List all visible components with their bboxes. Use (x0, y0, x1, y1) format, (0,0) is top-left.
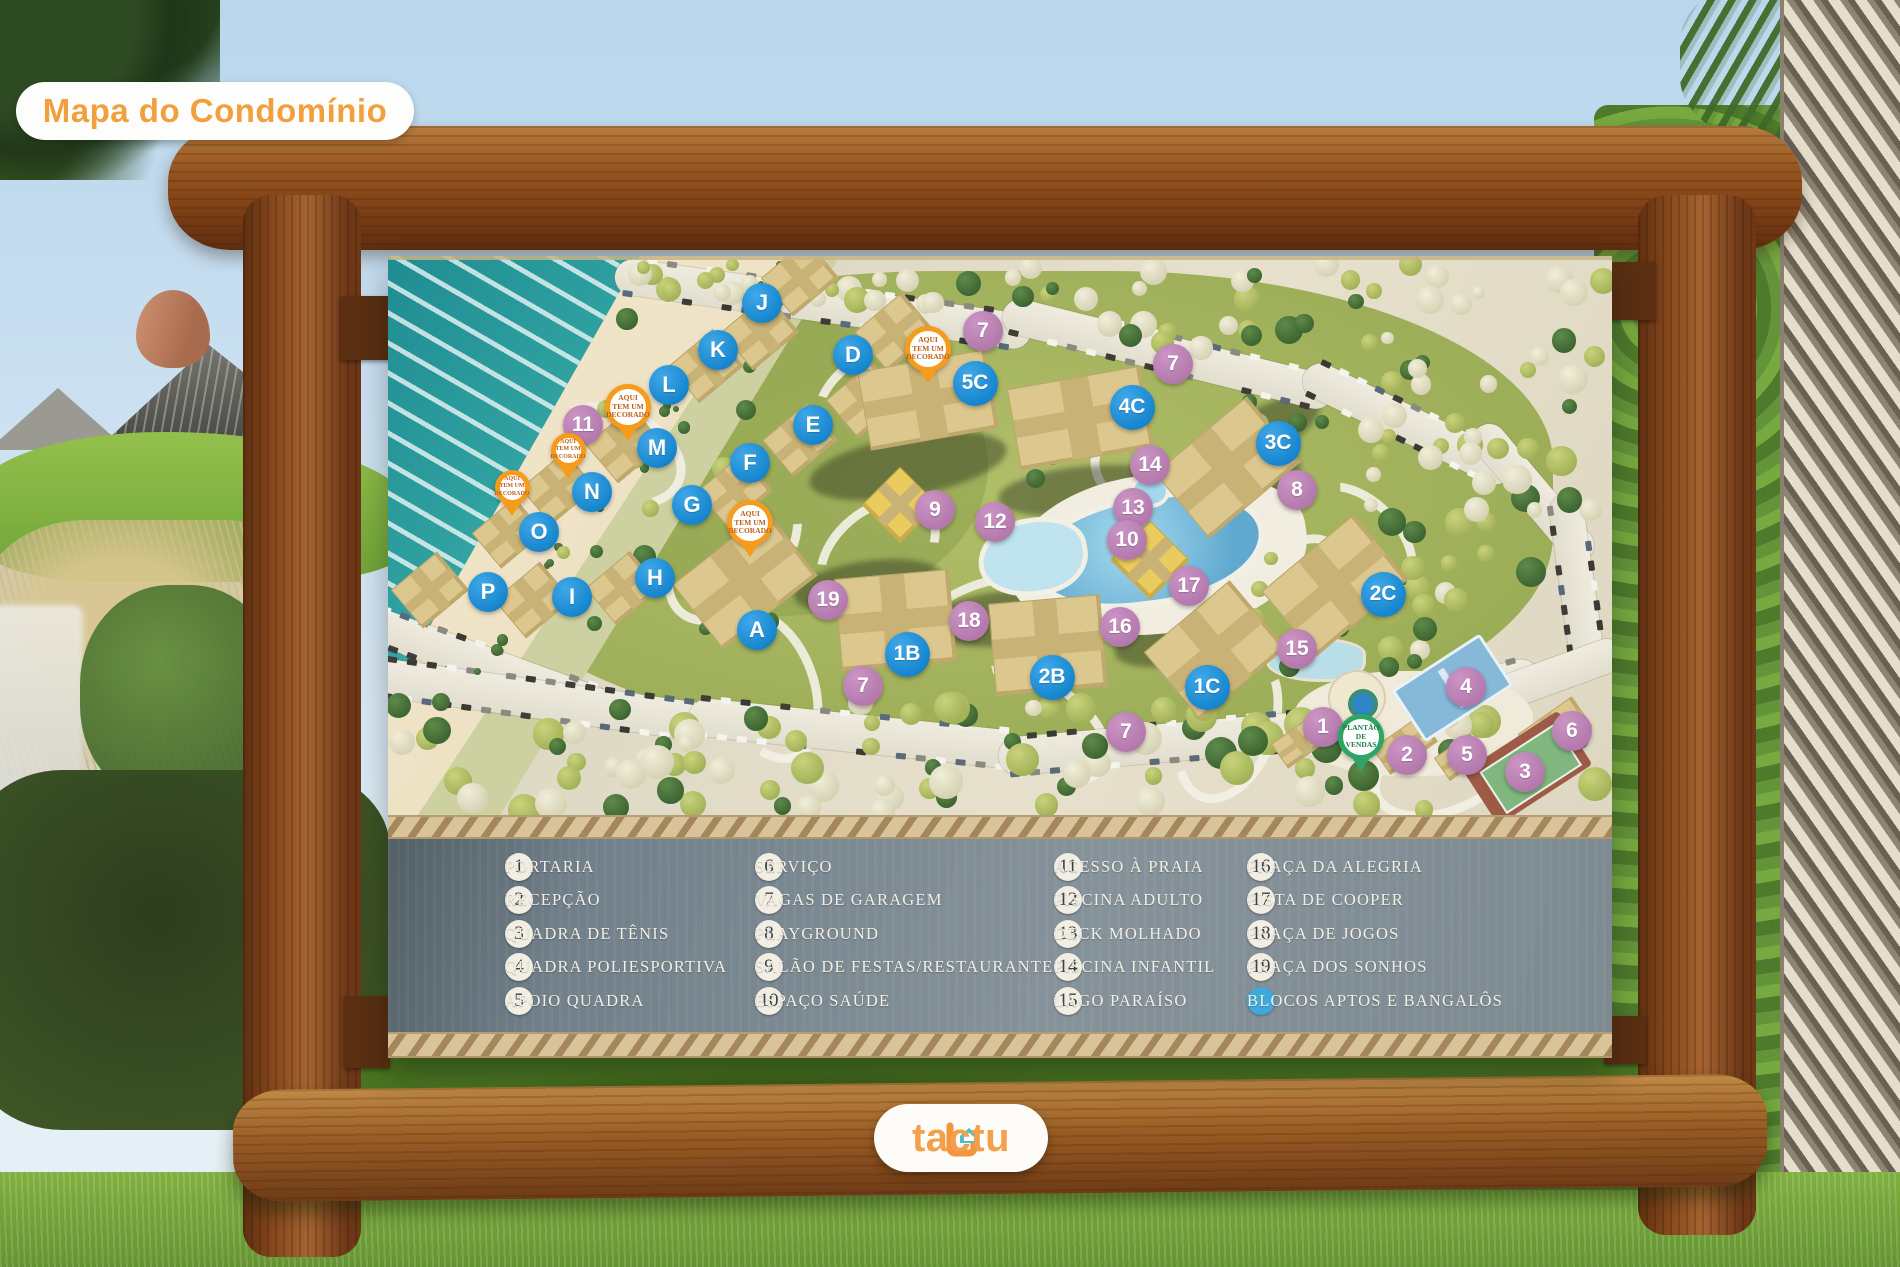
tree (726, 259, 738, 271)
tree (874, 775, 895, 796)
tree (1219, 316, 1238, 335)
parked-car (720, 697, 731, 704)
parked-car (500, 709, 511, 716)
parked-car (1563, 624, 1570, 635)
tree (640, 745, 674, 779)
parked-car (1226, 715, 1236, 722)
tree (1477, 545, 1494, 562)
tree (549, 738, 566, 755)
tree (708, 757, 735, 784)
legend-label: PORTARIA (505, 857, 595, 877)
parked-car (955, 759, 966, 766)
tree (1382, 403, 1407, 428)
parked-car (740, 699, 751, 706)
legend-label: PRAÇA DA ALEGRIA (1247, 857, 1423, 877)
tree (929, 765, 963, 799)
tree (1348, 760, 1379, 791)
tree (1552, 328, 1577, 353)
parked-car (1149, 758, 1159, 765)
tree (1264, 552, 1277, 565)
tree (1546, 446, 1576, 476)
tree (1082, 733, 1108, 759)
parked-car (664, 695, 675, 702)
parked-car (525, 675, 536, 682)
parked-car (644, 692, 655, 699)
parked-car (736, 736, 747, 743)
tree (1151, 331, 1174, 354)
rope-divider (388, 815, 1612, 839)
parked-car (701, 695, 712, 702)
parked-car (461, 704, 472, 711)
tree (1516, 557, 1546, 587)
tree (697, 272, 714, 289)
tree (1381, 371, 1404, 394)
map-board: 1PORTARIA2RECEPÇÃO3QUADRA DE TÊNIS4QUADR… (388, 256, 1612, 1058)
parked-car (1047, 730, 1057, 737)
parked-car (944, 300, 955, 307)
parked-car (998, 343, 1009, 350)
parked-car (1555, 565, 1562, 576)
tree (662, 281, 681, 300)
parked-car (1230, 348, 1241, 356)
legend-label: PISCINA INFANTIL (1054, 957, 1215, 977)
tree (1517, 438, 1539, 460)
parked-car (619, 726, 630, 733)
parked-car (1585, 541, 1592, 552)
parked-car (407, 659, 418, 666)
parked-car (975, 761, 986, 768)
parked-car (426, 662, 437, 669)
tree (1341, 270, 1360, 289)
tree (1502, 465, 1531, 494)
tree (1247, 268, 1262, 283)
parked-car (481, 707, 492, 714)
tree (1145, 767, 1162, 784)
tree (1140, 258, 1167, 285)
tree (1025, 700, 1042, 717)
tree (590, 545, 603, 558)
parked-car (820, 318, 831, 325)
tree (1005, 269, 1021, 285)
legend-label: VAGAS DE GARAGEM (755, 890, 943, 910)
tree (774, 797, 791, 814)
parked-car (520, 712, 531, 719)
tree (1560, 279, 1587, 306)
parked-car (1027, 732, 1037, 739)
tree (741, 275, 758, 292)
sign-frame-top-log (168, 126, 1802, 250)
tree (1480, 375, 1497, 392)
bldg (834, 569, 957, 671)
tree (680, 791, 706, 815)
title-badge-label: Mapa do Condomínio (43, 92, 387, 130)
legend-label: PLAYGROUND (755, 924, 879, 944)
tree (1418, 445, 1443, 470)
tree (1520, 362, 1536, 378)
tree (657, 777, 683, 803)
tree (956, 271, 981, 296)
parked-car (639, 729, 650, 736)
tree (1415, 800, 1434, 815)
parked-car (915, 755, 926, 762)
legend-label: ESPAÇO SAÚDE (755, 991, 890, 1011)
parked-car (964, 303, 975, 310)
parked-car (1558, 585, 1565, 596)
tree (457, 783, 487, 813)
site-map-art (388, 256, 1612, 815)
tree (896, 269, 919, 292)
tree (1579, 499, 1602, 522)
parked-car (721, 304, 732, 311)
parked-car (1547, 506, 1554, 517)
tree (596, 504, 604, 512)
photo-scene: 1PORTARIA2RECEPÇÃO3QUADRA DE TÊNIS4QUADR… (0, 0, 1900, 1267)
tree (1562, 399, 1578, 415)
parked-car (599, 723, 610, 730)
tree (1353, 791, 1379, 815)
legend-panel: 1PORTARIA2RECEPÇÃO3QUADRA DE TÊNIS4QUADR… (388, 839, 1612, 1032)
tree (1220, 751, 1254, 785)
tree (848, 691, 872, 715)
parked-car (756, 738, 767, 745)
tree (1584, 346, 1605, 367)
parked-car (820, 707, 831, 714)
tree (1066, 693, 1097, 724)
tree (1012, 286, 1034, 308)
tree (869, 799, 894, 815)
tactu-logo: tactu (874, 1104, 1048, 1172)
parked-car (1561, 605, 1568, 616)
legend-label: PISCINA ADULTO (1054, 890, 1203, 910)
parked-car (717, 734, 728, 741)
tree (1366, 283, 1382, 299)
parked-car (446, 664, 457, 671)
parked-car (506, 673, 517, 680)
tree (797, 795, 822, 815)
tree (642, 500, 658, 516)
tree (683, 751, 705, 773)
tactu-logo-text: tactu (912, 1116, 1010, 1161)
tree (872, 272, 887, 287)
tree (1153, 365, 1170, 382)
parked-car (545, 678, 556, 685)
parked-car (1050, 767, 1060, 774)
tree (389, 729, 415, 755)
legend-label: RECEPÇÃO (505, 890, 601, 910)
tree (864, 715, 880, 731)
tree (678, 735, 695, 752)
parked-car (999, 726, 1010, 733)
tree (1379, 657, 1399, 677)
legend-label: LAGO PARAÍSO (1054, 991, 1187, 1011)
tree (1136, 787, 1165, 815)
tree (678, 421, 690, 433)
parked-car (1189, 755, 1199, 762)
parked-car (896, 753, 907, 760)
legend-label: SALÃO DE FESTAS/RESTAURANTE (755, 957, 1053, 977)
parked-car (388, 656, 398, 663)
tree (922, 292, 944, 314)
parked-car (1593, 600, 1600, 611)
tree (1487, 438, 1508, 459)
tree (1361, 334, 1378, 351)
parked-car (605, 687, 616, 694)
tree (1557, 487, 1582, 512)
tree (1408, 359, 1426, 377)
parked-car (667, 261, 678, 268)
tree (1366, 467, 1381, 482)
legend-label: PISTA DE COOPER (1247, 890, 1404, 910)
title-badge: Mapa do Condomínio (16, 82, 414, 140)
tree (423, 717, 451, 745)
tree (557, 546, 570, 559)
tree (1403, 521, 1425, 543)
tree (1445, 413, 1465, 433)
parked-car (984, 305, 995, 312)
tree (597, 400, 615, 418)
rope-border-bottom (388, 1032, 1612, 1058)
parked-car (624, 689, 635, 696)
tree (587, 616, 602, 631)
fountain-roundabout (1328, 670, 1386, 726)
tree (1590, 268, 1612, 295)
parked-car (1169, 757, 1179, 764)
perimeter-fence (388, 256, 1612, 260)
tree (1358, 417, 1384, 443)
tree (1348, 294, 1363, 309)
tree (1119, 324, 1142, 347)
parked-car (585, 684, 596, 691)
tree (1294, 776, 1325, 807)
parked-car (1588, 560, 1595, 571)
parked-car (1288, 363, 1299, 371)
tree (1189, 336, 1212, 359)
legend-label: PRAÇA DOS SONHOS (1247, 957, 1428, 977)
parked-car (565, 681, 576, 688)
tree (760, 780, 780, 800)
tree (1074, 287, 1098, 311)
parked-car (840, 710, 851, 717)
tree (791, 752, 824, 785)
tree (1315, 415, 1329, 429)
tree (1241, 325, 1262, 346)
parked-car (1596, 620, 1603, 631)
parked-car (1110, 762, 1120, 769)
legend-label: PRAÇA DE JOGOS (1247, 924, 1400, 944)
parked-car (880, 714, 891, 721)
tree (1063, 760, 1091, 788)
tree (1450, 293, 1472, 315)
legend-label: QUADRA DE TÊNIS (505, 924, 669, 944)
bldg (988, 594, 1108, 695)
tree (535, 788, 566, 815)
tree (563, 721, 586, 744)
tree (1558, 364, 1588, 394)
tree (603, 794, 629, 815)
frame-connector (344, 996, 390, 1068)
tree (666, 397, 674, 405)
tree (1425, 265, 1448, 288)
legend-label: QUADRA POLIESPORTIVA (505, 957, 727, 977)
tree (616, 308, 637, 329)
parked-car (1505, 657, 1516, 665)
frame-connector (340, 296, 392, 360)
legend-label: SERVIÇO (755, 857, 833, 877)
tree (1325, 776, 1344, 795)
tree (491, 644, 503, 656)
tree (1129, 722, 1162, 755)
parked-car (682, 298, 693, 305)
tree (1412, 594, 1435, 617)
parked-car (1591, 580, 1598, 591)
tree (1578, 767, 1612, 801)
tree (1413, 617, 1437, 641)
tree (736, 400, 756, 420)
parked-car (959, 337, 970, 344)
legend-label: DECK MOLHADO (1054, 924, 1202, 944)
tree (546, 559, 554, 567)
tree (1472, 286, 1485, 299)
parked-car (622, 290, 633, 297)
parked-car (780, 703, 791, 710)
parked-car (421, 698, 432, 705)
legend-label: BLOCOS APTOS E BANGALÔS (1247, 991, 1503, 1011)
tree (432, 693, 450, 711)
parked-car (1249, 353, 1260, 361)
tree (713, 284, 730, 301)
tree (1343, 736, 1359, 752)
parked-car (1066, 728, 1076, 735)
parked-car (1550, 525, 1557, 536)
tree (1407, 654, 1422, 669)
legend-label: APOIO QUADRA (505, 991, 645, 1011)
legend-label: ACESSO À PRAIA (1054, 857, 1204, 877)
tree (1035, 793, 1059, 815)
tree (557, 766, 581, 790)
parked-car (840, 321, 851, 328)
tree (1151, 697, 1177, 723)
tree (1416, 286, 1444, 314)
tree (1444, 588, 1468, 612)
